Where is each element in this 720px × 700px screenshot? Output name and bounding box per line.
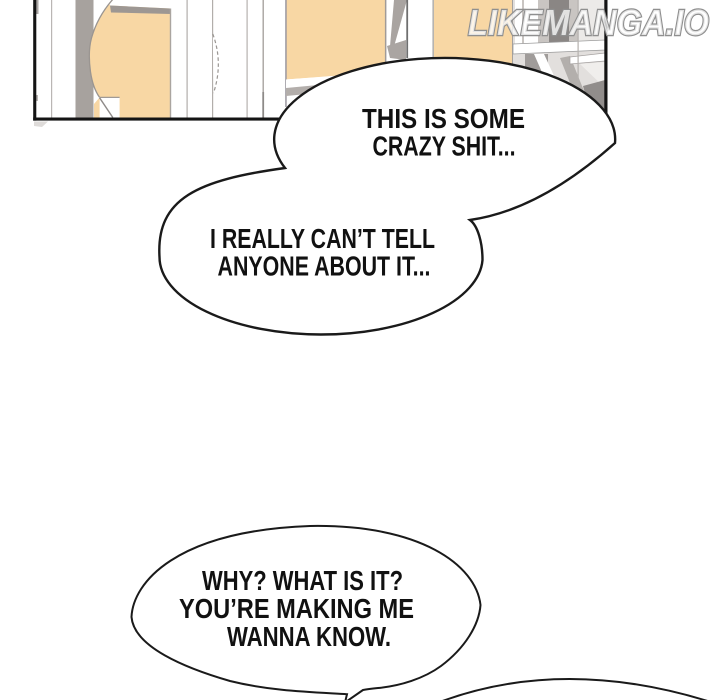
svg-text:CRAZY SHIT...: CRAZY SHIT... — [373, 131, 516, 162]
svg-text:I REALLY CAN’T TELL: I REALLY CAN’T TELL — [210, 223, 435, 254]
svg-text:ANYONE ABOUT IT...: ANYONE ABOUT IT... — [218, 251, 431, 282]
svg-text:THIS IS SOME: THIS IS SOME — [362, 103, 525, 134]
svg-text:WANNA KNOW.: WANNA KNOW. — [227, 621, 391, 652]
svg-text:LIKEMANGA.IO: LIKEMANGA.IO — [468, 2, 709, 43]
svg-text:YOU’RE MAKING ME: YOU’RE MAKING ME — [179, 593, 414, 624]
svg-text:WHY? WHAT IS IT?: WHY? WHAT IS IT? — [202, 565, 403, 596]
